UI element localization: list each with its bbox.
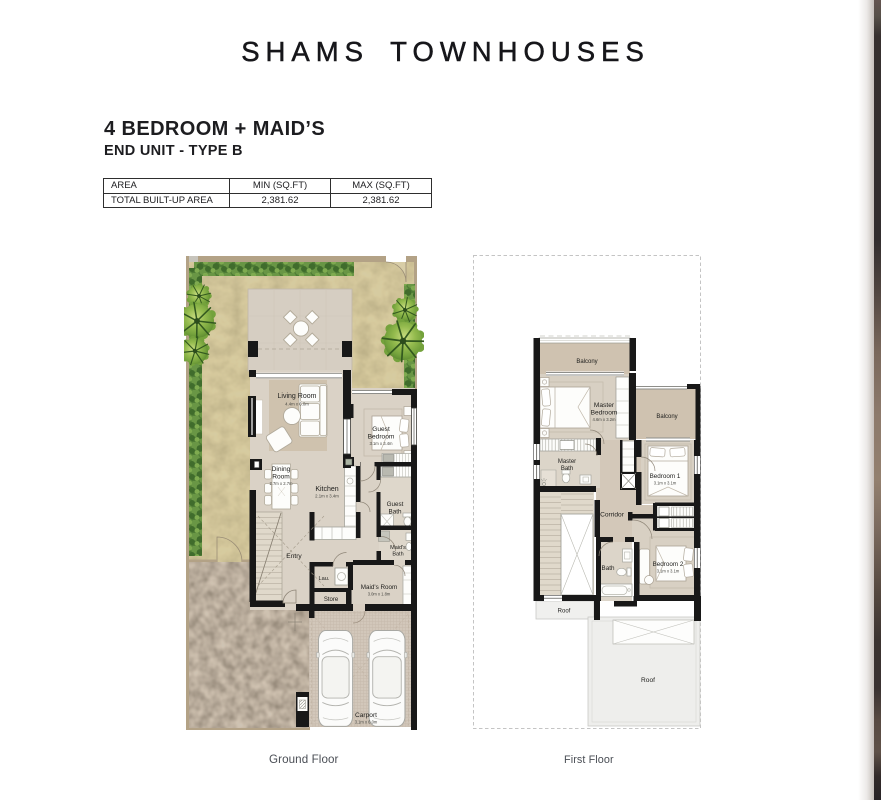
svg-text:Bedroom: Bedroom	[591, 410, 618, 417]
svg-text:Balcony: Balcony	[656, 414, 677, 420]
svg-text:Master: Master	[594, 402, 615, 409]
svg-text:Dining: Dining	[272, 466, 291, 473]
svg-text:Roof: Roof	[641, 677, 655, 684]
svg-text:Balcony: Balcony	[576, 359, 597, 365]
svg-text:3.1m x 3.4m: 3.1m x 3.4m	[369, 441, 393, 446]
svg-text:4.4m x 6.0m: 4.4m x 6.0m	[285, 402, 309, 407]
svg-text:Maid's: Maid's	[390, 545, 406, 551]
svg-text:Store: Store	[324, 597, 339, 603]
svg-text:Master: Master	[558, 459, 576, 465]
svg-text:Entry: Entry	[286, 553, 302, 560]
svg-text:Bath: Bath	[561, 466, 573, 472]
svg-text:3.0m x 1.8m: 3.0m x 1.8m	[368, 592, 391, 597]
svg-text:Bedroom 2: Bedroom 2	[653, 561, 684, 568]
svg-text:Maid's Room: Maid's Room	[361, 584, 398, 591]
svg-text:3.1m x 3.1m: 3.1m x 3.1m	[654, 481, 677, 486]
svg-text:Lau.: Lau.	[319, 576, 330, 582]
svg-text:Corridor: Corridor	[600, 512, 625, 519]
svg-text:Room: Room	[272, 474, 290, 481]
svg-text:Guest: Guest	[372, 426, 390, 433]
svg-text:Bedroom 1: Bedroom 1	[650, 473, 681, 480]
svg-text:Living Room: Living Room	[278, 393, 317, 400]
svg-text:Roof: Roof	[558, 609, 571, 615]
svg-text:2.1m x 3.4m: 2.1m x 3.4m	[315, 494, 339, 499]
svg-text:Kitchen: Kitchen	[315, 486, 338, 493]
svg-text:Bath: Bath	[602, 565, 615, 572]
svg-text:4.6m x 3.2m: 4.6m x 3.2m	[592, 417, 616, 422]
svg-text:3.1m x 3.1m: 3.1m x 3.1m	[657, 569, 680, 574]
svg-text:Bath: Bath	[389, 509, 402, 516]
svg-text:Bath: Bath	[392, 552, 403, 558]
svg-text:Carport: Carport	[355, 712, 377, 719]
svg-text:Bedroom: Bedroom	[368, 434, 395, 441]
svg-text:2.7m x 2.7m: 2.7m x 2.7m	[269, 481, 293, 486]
svg-text:3.1m x 6.0m: 3.1m x 6.0m	[355, 720, 378, 725]
svg-text:Guest: Guest	[387, 501, 404, 508]
